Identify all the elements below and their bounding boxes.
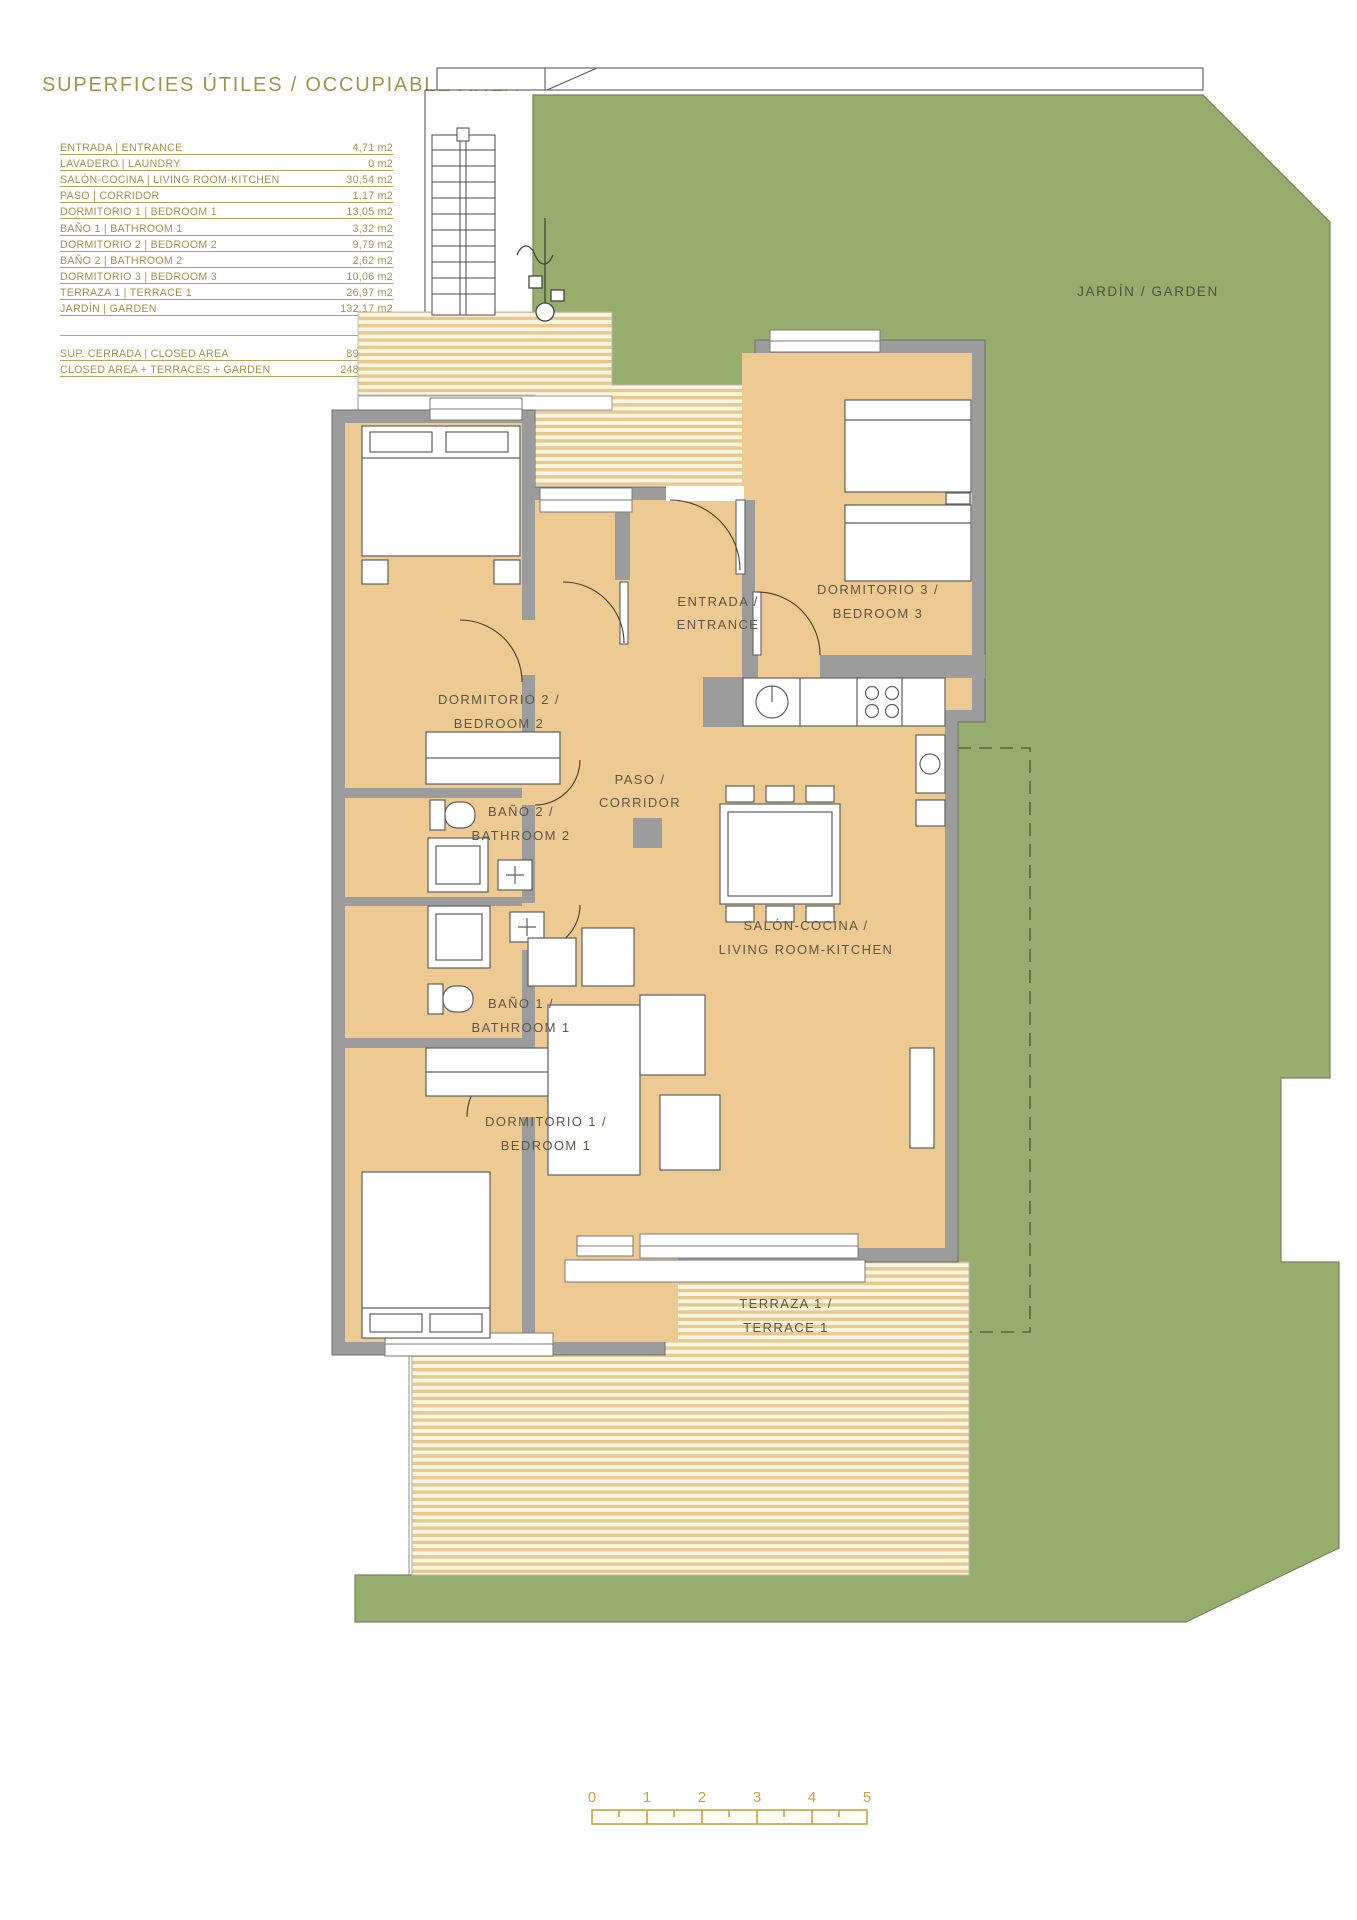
floorplan-page: SUPERFICIES ÚTILES / OCCUPIABLE AREA ENT… [0,0,1357,1920]
double-bed-icon [362,1172,490,1338]
toilet-icon [428,984,473,1014]
scale-tick-label: 0 [588,1789,596,1806]
window-icon [640,1234,858,1258]
armchair-icon [528,938,576,986]
cabinet-icon [916,800,945,826]
wardrobe-icon [426,1048,560,1096]
tv-unit-icon [910,1048,934,1148]
window-icon [540,488,632,512]
single-bed-icon [845,400,971,492]
window-sill [565,1260,865,1282]
window-icon [430,398,522,420]
shower-icon [428,906,490,968]
nightstand-icon [494,560,520,584]
armchair-icon [582,928,634,986]
entrance-door-opening [666,486,744,501]
living-label-line1: SALÓN-COCINA / [743,918,868,933]
washing-machine-icon [916,735,945,793]
scale-tick-label: 5 [863,1789,871,1806]
nightstand-icon [362,560,388,584]
nightstand-icon [946,493,970,504]
terrace1-label-line1: TERRAZA 1 / [739,1296,832,1311]
garden-label: JARDÍN / GARDEN [1077,284,1219,299]
sink-icon [498,860,532,890]
window-icon [577,1236,633,1256]
bedroom2-label-line2: BEDROOM 2 [454,716,545,731]
bedroom1-label-line1: DORMITORIO 1 / [485,1114,607,1129]
bedroom3-label-line1: DORMITORIO 3 / [817,582,939,597]
living-label-line2: LIVING ROOM-KITCHEN [719,942,894,957]
double-bed-icon [362,426,520,556]
bathroom2-label-line1: BAÑO 2 / [488,804,554,819]
scale-tick-label: 1 [643,1789,651,1806]
scale-tick-label: 4 [808,1789,816,1806]
scale-bar: 0 1 2 3 4 5 [588,1789,871,1824]
bedroom2-label-line1: DORMITORIO 2 / [438,692,560,707]
toilet-icon [430,800,475,830]
corridor-label-line1: PASO / [615,772,666,787]
entrance-door-leaf [736,500,745,574]
floorplan-drawing: JARDÍN / GARDEN TERRAZA 1 / TERRACE 1 [0,0,1357,1920]
bathroom2-label-line2: BATHROOM 2 [472,828,571,843]
wardrobe-icon [426,732,560,784]
scale-tick-label: 2 [698,1789,706,1806]
coffee-table-icon [660,1095,720,1170]
shower-icon [428,838,488,892]
single-bed-icon [845,505,971,581]
terrace1-label-line2: TERRACE 1 [743,1320,829,1335]
bedroom1-label-line2: BEDROOM 1 [501,1138,592,1153]
staircase-icon [432,128,495,315]
bathroom1-label-line1: BAÑO 1 / [488,996,554,1011]
dining-table-icon [720,786,840,922]
corridor-label-line2: CORRIDOR [599,795,681,810]
bathroom1-label-line2: BATHROOM 1 [472,1020,571,1035]
scale-tick-label: 3 [753,1789,761,1806]
bedroom3-label-line2: BEDROOM 3 [833,606,924,621]
window-icon [770,330,880,352]
entrance-label-line1: ENTRADA / [677,594,758,609]
kitchen-sink-icon [756,686,788,718]
entrance-label-line2: ENTRANCE [677,617,760,632]
